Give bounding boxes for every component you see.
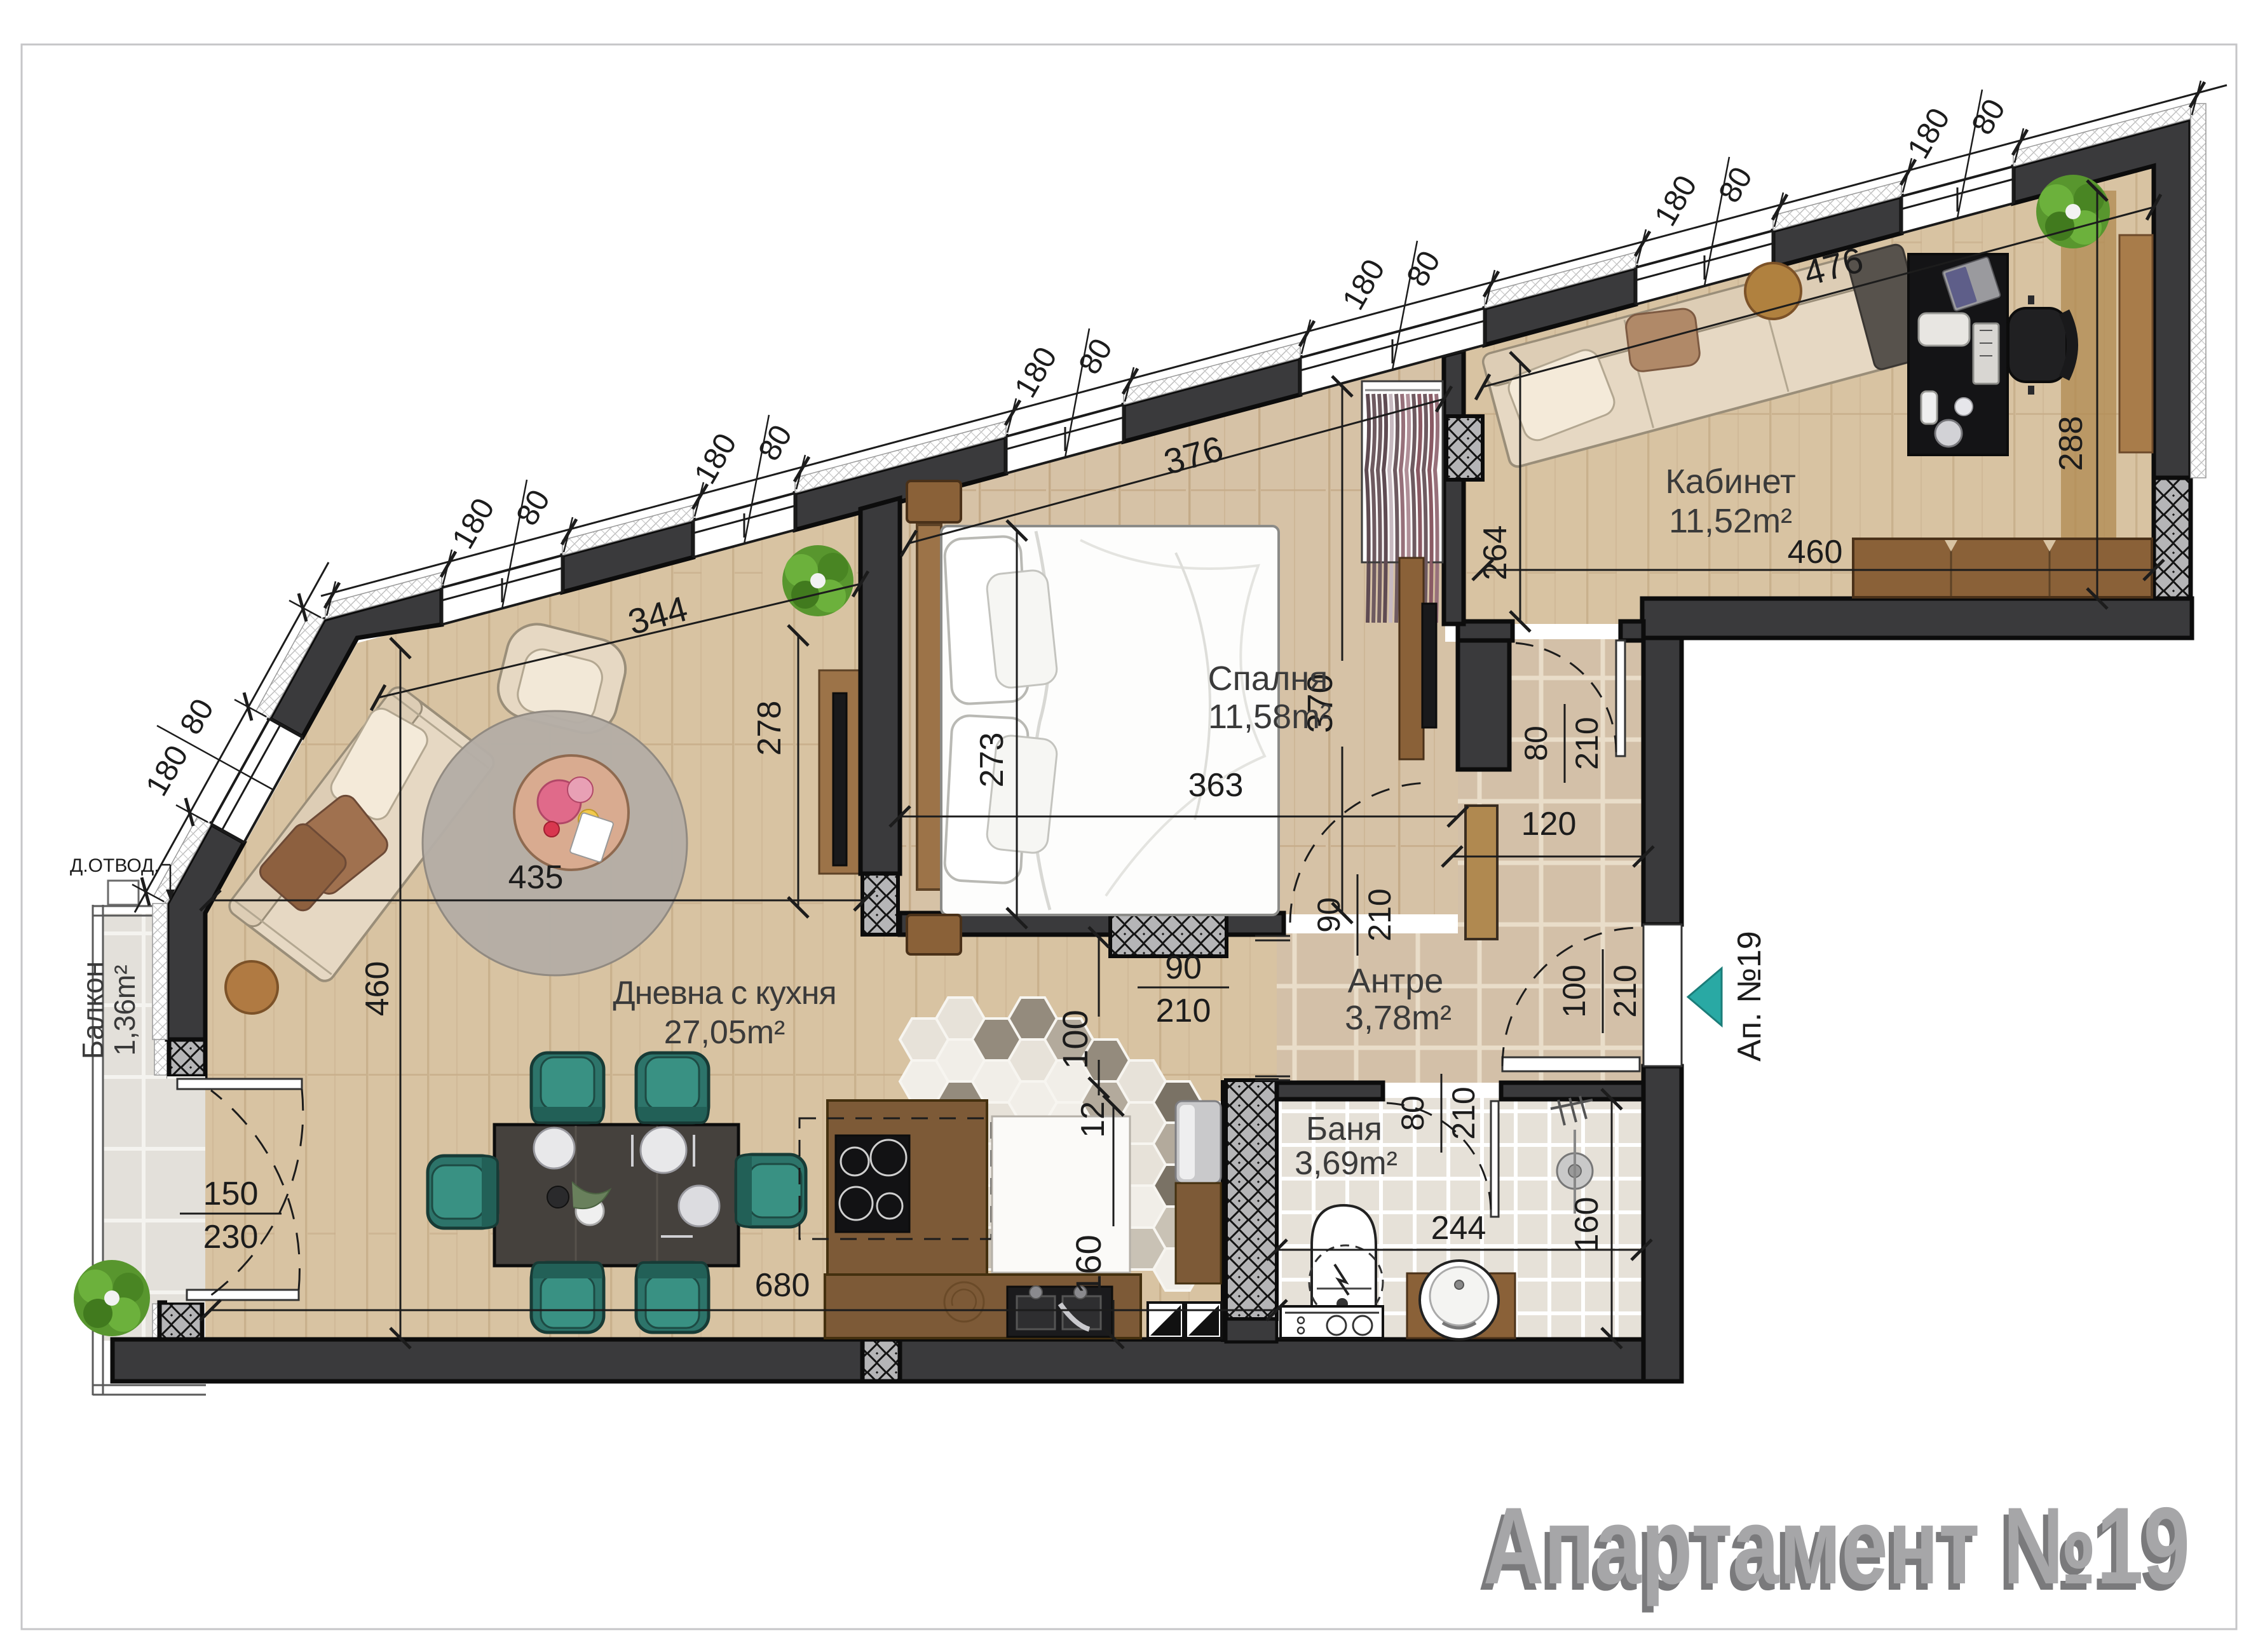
svg-text:160: 160 <box>1068 1235 1108 1294</box>
svg-text:160: 160 <box>1568 1197 1605 1252</box>
svg-text:Кабинет: Кабинет <box>1665 463 1795 501</box>
svg-text:100: 100 <box>1055 1010 1095 1069</box>
svg-text:363: 363 <box>1188 767 1244 804</box>
svg-text:Балкон: Балкон <box>76 961 109 1059</box>
svg-text:120: 120 <box>1521 806 1577 843</box>
svg-text:3,78m²: 3,78m² <box>1345 999 1452 1037</box>
svg-text:Дневна с кухня: Дневна с кухня <box>613 975 836 1012</box>
svg-text:Спалня: Спалня <box>1208 660 1328 698</box>
svg-text:210: 210 <box>1156 992 1211 1029</box>
svg-text:210: 210 <box>1446 1087 1481 1139</box>
svg-text:Апартамент №19: Апартамент №19 <box>1483 1485 2190 1607</box>
svg-text:80: 80 <box>1395 1095 1431 1131</box>
svg-text:12: 12 <box>1075 1101 1112 1138</box>
svg-text:90: 90 <box>1165 949 1202 986</box>
svg-text:680: 680 <box>755 1267 810 1304</box>
svg-text:Антре: Антре <box>1348 962 1444 1000</box>
svg-text:11,52m²: 11,52m² <box>1669 502 1792 540</box>
svg-text:210: 210 <box>1569 717 1605 769</box>
svg-text:90: 90 <box>1311 897 1347 933</box>
svg-text:150: 150 <box>203 1175 259 1212</box>
svg-text:11,58m²: 11,58m² <box>1208 698 1331 736</box>
svg-text:80: 80 <box>1518 726 1554 761</box>
svg-text:Ап. №19: Ап. №19 <box>1731 931 1768 1061</box>
svg-text:27,05m²: 27,05m² <box>664 1014 785 1051</box>
svg-text:278: 278 <box>751 701 788 756</box>
svg-text:460: 460 <box>359 961 396 1017</box>
svg-text:Д.ОТВОД.: Д.ОТВОД. <box>70 855 160 876</box>
svg-text:210: 210 <box>1607 965 1643 1017</box>
svg-text:273: 273 <box>974 733 1010 788</box>
svg-text:1,36m²: 1,36m² <box>108 965 141 1055</box>
svg-text:100: 100 <box>1556 965 1592 1017</box>
svg-text:288: 288 <box>2053 416 2090 471</box>
svg-text:Баня: Баня <box>1306 1111 1382 1148</box>
svg-text:460: 460 <box>1788 534 1843 571</box>
svg-text:244: 244 <box>1431 1210 1486 1247</box>
svg-text:210: 210 <box>1362 888 1398 941</box>
svg-text:230: 230 <box>203 1219 259 1256</box>
svg-text:3,69m²: 3,69m² <box>1295 1145 1398 1182</box>
svg-text:435: 435 <box>508 859 564 896</box>
